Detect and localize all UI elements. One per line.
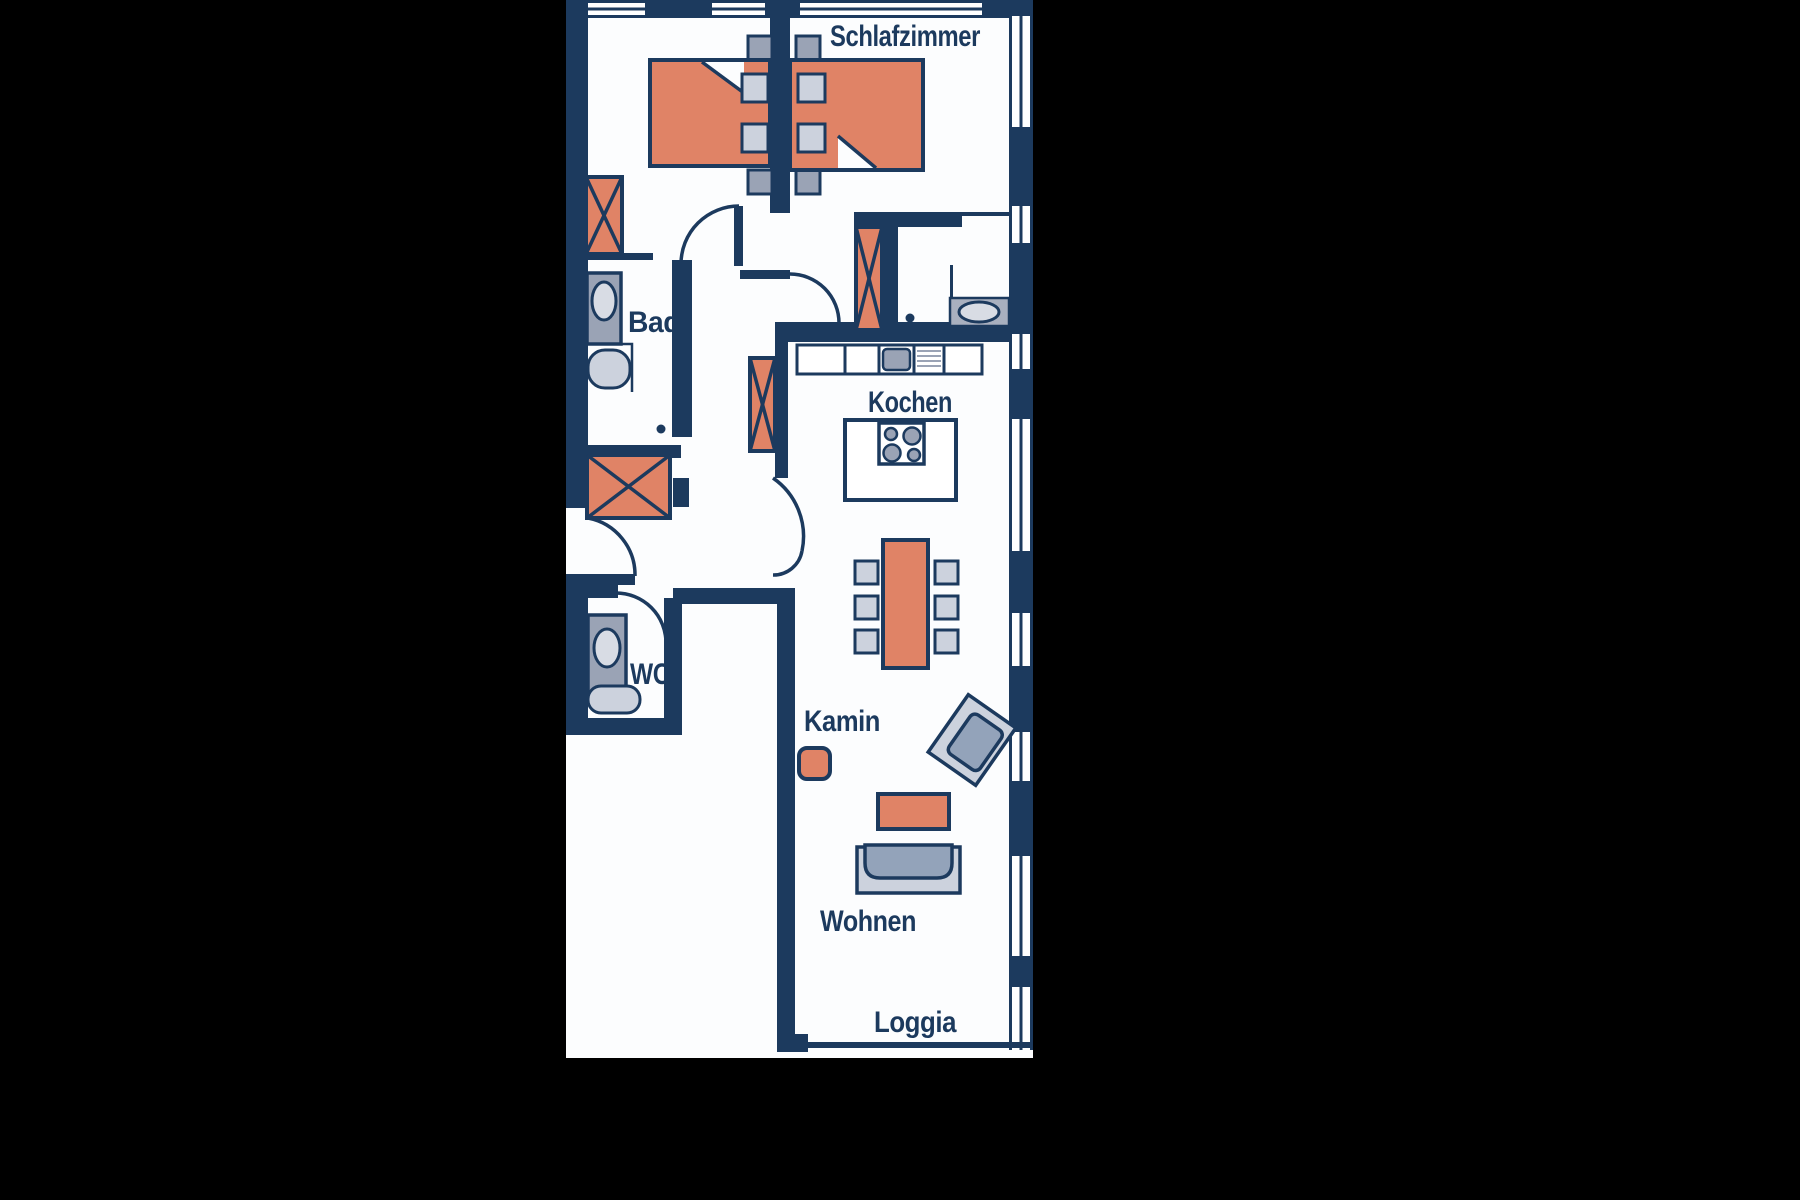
label-kamin: Kamin <box>804 705 880 738</box>
floor-plan: Schlafzimmer Bad Kochen WC Kamin Wohnen … <box>566 0 1033 1058</box>
label-schlafzimmer: Schlafzimmer <box>830 20 981 53</box>
label-loggia: Loggia <box>874 1006 957 1039</box>
label-kochen: Kochen <box>868 386 952 419</box>
label-wc: WC <box>630 658 670 691</box>
floor-plan-drawing: Schlafzimmer Bad Kochen WC Kamin Wohnen … <box>566 0 1033 1058</box>
bathroom-fixtures <box>587 273 632 392</box>
wardrobe-corridor <box>750 358 775 451</box>
armchair <box>928 695 1016 786</box>
living-door-arc-small <box>773 551 802 575</box>
coffee-table <box>878 794 949 829</box>
nook-sink <box>950 298 1009 326</box>
kitchen-door-leaf <box>740 270 790 279</box>
kitchen-counter <box>797 345 982 374</box>
bed-left <box>650 60 770 166</box>
stove-island <box>845 420 956 500</box>
bathroom-sink <box>588 350 630 388</box>
fireplace <box>799 748 830 779</box>
kitchen-door-arc <box>790 274 839 323</box>
pillow <box>742 74 768 102</box>
sofa <box>857 845 960 893</box>
pillow <box>798 74 825 102</box>
label-bad: Bad <box>628 306 680 339</box>
entry-door-arc <box>588 518 635 576</box>
bed-right <box>790 60 923 170</box>
dining-table <box>883 540 928 668</box>
pillow <box>798 124 825 152</box>
bedroom-door-leaf <box>734 206 743 266</box>
label-wohnen: Wohnen <box>820 905 916 938</box>
wardrobe-nook <box>856 227 882 330</box>
wardrobe-bedroom <box>586 177 622 254</box>
kitchen-sink <box>883 349 910 370</box>
pillow <box>742 124 768 152</box>
entry-door-leaf <box>566 574 635 585</box>
bedroom-door-arc <box>681 206 739 264</box>
dining-set <box>855 540 958 668</box>
left-wall <box>566 0 588 735</box>
living-door-arc-large <box>773 478 804 551</box>
wardrobe-hall <box>587 455 670 518</box>
